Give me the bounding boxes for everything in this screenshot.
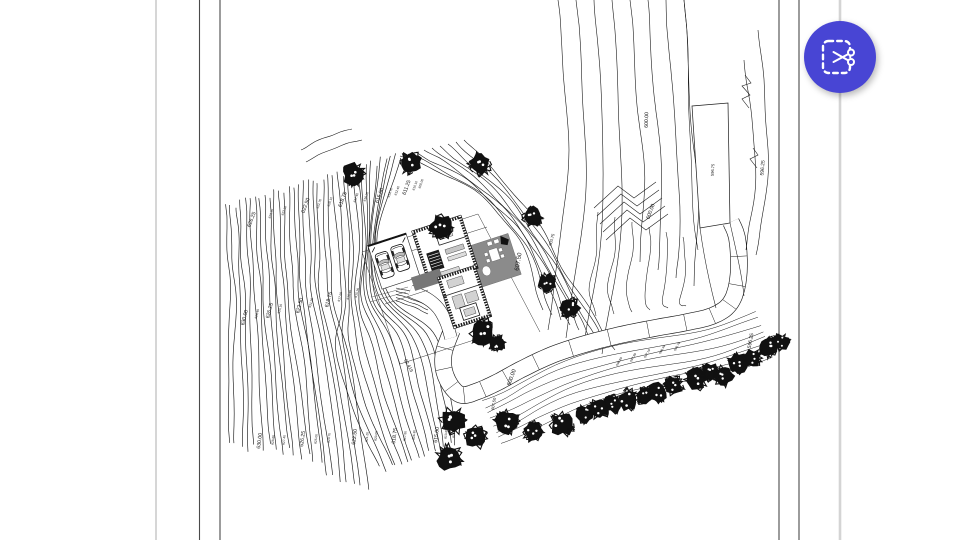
svg-text:622.50: 622.50 bbox=[301, 197, 312, 214]
svg-text:626.25: 626.25 bbox=[265, 302, 275, 319]
svg-text:597.80: 597.80 bbox=[629, 352, 637, 363]
svg-text:600.00: 600.00 bbox=[646, 203, 657, 220]
svg-text:618.75: 618.75 bbox=[338, 191, 349, 208]
svg-text:603.75: 603.75 bbox=[548, 232, 556, 246]
svg-text:625.00: 625.00 bbox=[313, 434, 318, 444]
svg-text:609.00: 609.00 bbox=[418, 178, 425, 189]
svg-text:630.00: 630.00 bbox=[256, 433, 264, 450]
svg-text:615.00: 615.00 bbox=[433, 427, 441, 444]
svg-text:612.60: 612.60 bbox=[451, 428, 456, 438]
svg-text:616.30: 616.30 bbox=[411, 430, 416, 440]
svg-text:617.40: 617.40 bbox=[353, 192, 360, 203]
svg-text:620.00: 620.00 bbox=[373, 431, 378, 441]
svg-text:612.40: 612.40 bbox=[394, 185, 401, 196]
svg-text:598.50: 598.50 bbox=[615, 356, 623, 367]
svg-text:595.70: 595.70 bbox=[673, 341, 681, 352]
svg-text:597.10: 597.10 bbox=[643, 348, 651, 359]
svg-text:600.00: 600.00 bbox=[644, 112, 651, 128]
svg-text:616.20: 616.20 bbox=[363, 191, 370, 202]
svg-text:596.25: 596.25 bbox=[759, 160, 766, 176]
svg-text:623.60: 623.60 bbox=[281, 205, 288, 216]
svg-text:62.419: 62.419 bbox=[403, 358, 414, 373]
svg-text:623.70: 623.70 bbox=[326, 433, 331, 443]
svg-text:622.50: 622.50 bbox=[351, 429, 359, 446]
svg-text:617.50: 617.50 bbox=[402, 431, 407, 441]
svg-text:620.10: 620.10 bbox=[327, 196, 334, 207]
svg-text:626.25: 626.25 bbox=[247, 211, 258, 228]
svg-text:621.20: 621.20 bbox=[308, 297, 314, 308]
svg-text:618.75: 618.75 bbox=[391, 428, 399, 445]
svg-text:596.75: 596.75 bbox=[710, 163, 716, 176]
svg-text:613.70: 613.70 bbox=[387, 187, 394, 198]
svg-text:630.00: 630.00 bbox=[240, 309, 250, 326]
svg-text:611.25: 611.25 bbox=[402, 179, 413, 196]
svg-text:628.60: 628.60 bbox=[270, 435, 275, 445]
svg-text:607.50: 607.50 bbox=[514, 252, 523, 272]
svg-text:628.40: 628.40 bbox=[254, 308, 260, 319]
svg-text:621.20: 621.20 bbox=[364, 432, 369, 442]
svg-text:596.25: 596.25 bbox=[747, 333, 756, 349]
svg-text:596.40: 596.40 bbox=[658, 344, 666, 355]
svg-text:626.25: 626.25 bbox=[299, 431, 307, 448]
svg-text:617.60: 617.60 bbox=[337, 291, 343, 302]
svg-text:627.40: 627.40 bbox=[281, 435, 286, 445]
svg-text:613.80: 613.80 bbox=[443, 429, 448, 439]
